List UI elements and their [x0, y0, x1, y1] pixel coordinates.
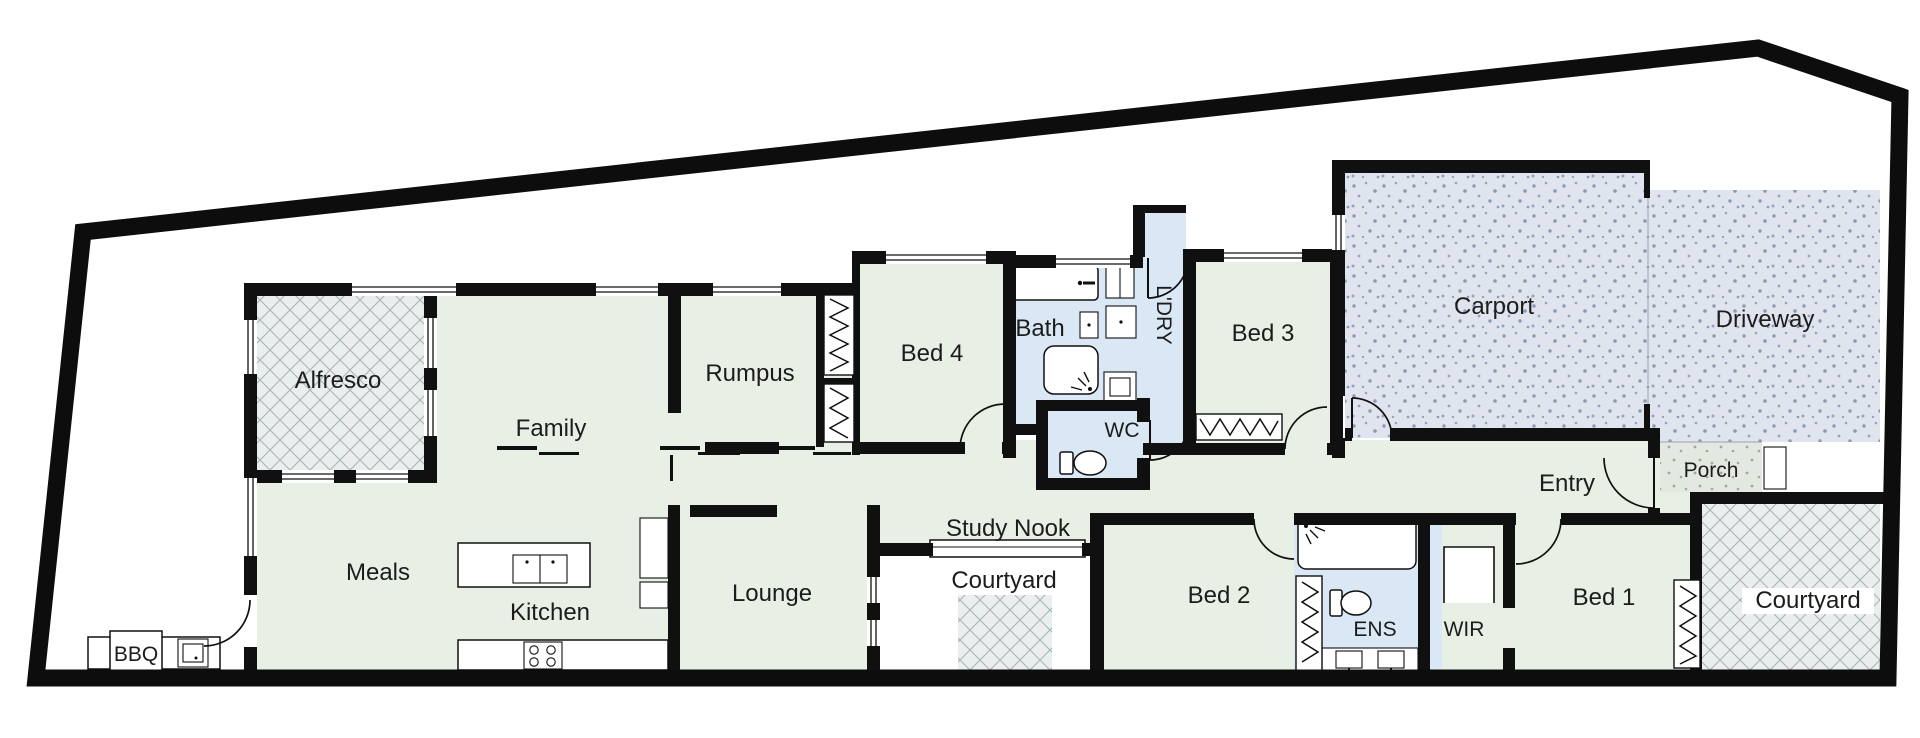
- room-label-porch: Porch: [1684, 459, 1739, 482]
- shower-head-icon: [1088, 387, 1092, 391]
- room-label-entry: Entry: [1539, 470, 1595, 497]
- laundry-trough-bowl: [1110, 378, 1130, 396]
- room-label-meals: Meals: [346, 559, 410, 586]
- kitchen-bench: [458, 640, 668, 670]
- wall-alfresco-bottom: [244, 470, 437, 483]
- floor-plan-canvas: Alfresco Family Rumpus Bed 4 Bath L'DRY …: [0, 0, 1920, 738]
- room-label-kitchen: Kitchen: [510, 599, 590, 626]
- bbq-sink-drain: [195, 657, 198, 660]
- burner-4: [547, 658, 555, 666]
- ens-toilet: [1341, 591, 1371, 615]
- window-bath-top: [1056, 255, 1130, 268]
- wall-driveway-stub-top: [1644, 160, 1650, 198]
- ens-cistern: [1330, 590, 1342, 616]
- room-label-carport: Carport: [1454, 293, 1534, 320]
- wall-ens-wir: [1418, 513, 1430, 678]
- room-label-courtyard-center: Courtyard: [951, 567, 1056, 594]
- room-label-bath: Bath: [1015, 315, 1064, 342]
- bed1-robe: [1674, 580, 1700, 668]
- window-alfresco-bottom-2: [356, 470, 408, 483]
- burner-1: [530, 646, 538, 654]
- wall-courtyard-left: [867, 543, 880, 678]
- room-label-wc: WC: [1105, 419, 1140, 442]
- slider-hall-1a: [660, 446, 700, 450]
- burner-2: [547, 646, 555, 654]
- bath-shower: [1044, 346, 1098, 394]
- wall-courtyard-right-top: [1690, 492, 1886, 504]
- window-alfresco-right-1: [424, 318, 437, 368]
- wall-lounge-top: [690, 505, 777, 517]
- slider-family-vertical: [670, 455, 673, 481]
- wall-bed3-bottom-left: [1185, 443, 1285, 455]
- courtyard-center-paving: [958, 595, 1052, 672]
- wall-driveway-stub-bottom: [1644, 404, 1650, 441]
- room-label-lounge: Lounge: [732, 580, 812, 607]
- study-nook-desk: [930, 540, 1085, 557]
- window-alfresco-top: [352, 283, 456, 296]
- bed3-robe: [1196, 414, 1282, 440]
- window-courtyard-left-2: [867, 620, 880, 646]
- porch-step: [1764, 447, 1786, 489]
- slider-family-2: [539, 452, 579, 455]
- burner-3: [530, 658, 538, 666]
- wall-carport-top: [1338, 160, 1648, 173]
- wall-carport-left-mid: [1332, 250, 1345, 396]
- room-label-bed2: Bed 2: [1188, 582, 1251, 609]
- fridge-space: [640, 518, 668, 578]
- room-label-bed1: Bed 1: [1573, 584, 1636, 611]
- wall-rumpus-linen: [816, 289, 824, 447]
- wall-wir-bed1-upper: [1503, 513, 1515, 608]
- room-label-study-nook: Study Nook: [946, 515, 1071, 542]
- wall-laundry-alcove-side: [1133, 212, 1145, 257]
- room-label-courtyard-right: Courtyard: [1755, 587, 1860, 614]
- slider-hall-1b: [698, 452, 740, 455]
- window-alfresco-right-2: [424, 390, 437, 436]
- kitchen-sink-tap-1: [525, 560, 528, 563]
- wall-wc-right-lower: [1137, 458, 1150, 480]
- ens-basin-2: [1378, 651, 1404, 668]
- window-alfresco-bottom-1: [282, 470, 334, 483]
- wall-courtyard-bed2: [1090, 513, 1104, 678]
- wall-family-rumpus: [668, 283, 681, 413]
- wall-wc-left: [1036, 400, 1048, 480]
- wall-carport-left-upper: [1332, 160, 1345, 215]
- kitchen-sink-tap-2: [551, 560, 554, 563]
- slider-hall-2b: [813, 452, 851, 455]
- wall-bed4-bottom-stub: [1002, 442, 1016, 454]
- wall-bed1-top: [1561, 513, 1690, 525]
- floor-plan: Alfresco Family Rumpus Bed 4 Bath L'DRY …: [0, 0, 1920, 738]
- slider-hall-2a: [779, 446, 815, 450]
- wall-entry-lower: [1648, 508, 1660, 518]
- wall-linen-divider: [822, 378, 858, 384]
- window-courtyard-left-1: [867, 577, 880, 603]
- room-label-bed3: Bed 3: [1232, 320, 1295, 347]
- wir-shelf: [1444, 547, 1494, 603]
- wall-kitchen-lounge: [668, 505, 680, 678]
- window-bed3-top: [1224, 249, 1302, 262]
- wall-laundry-alcove-top: [1133, 205, 1186, 213]
- label-bbq: BBQ: [114, 643, 158, 666]
- slider-family-1: [497, 446, 537, 450]
- wall-studynook-left: [867, 505, 880, 545]
- window-bed4-top: [886, 251, 986, 264]
- wall-carport-bottom-stub: [1345, 428, 1352, 441]
- cooktop: [524, 642, 562, 669]
- wall-bed3-bottom-stub: [1327, 443, 1343, 455]
- window-alfresco-left-1: [244, 320, 257, 374]
- room-label-driveway: Driveway: [1716, 306, 1815, 333]
- bath-vanity-tap: [1087, 323, 1090, 326]
- wall-ens-top: [1294, 513, 1516, 525]
- window-meals-left: [244, 478, 257, 556]
- bbq-sink-bowl: [183, 644, 203, 662]
- window-family-top: [596, 283, 658, 296]
- pantry-cabinet: [640, 582, 668, 608]
- room-label-bed4: Bed 4: [901, 340, 964, 367]
- room-label-family: Family: [516, 415, 587, 442]
- wall-carport-bottom: [1390, 428, 1648, 441]
- wall-wc-top: [1040, 400, 1150, 411]
- wall-bed4-bottom: [855, 442, 965, 454]
- wc-cistern: [1060, 452, 1073, 474]
- ens-basin-1: [1336, 651, 1362, 668]
- wall-wc-bottom: [1036, 478, 1150, 490]
- wall-bed2-top: [1104, 513, 1254, 525]
- wc-toilet: [1074, 451, 1106, 475]
- room-label-wir: WIR: [1444, 618, 1485, 641]
- room-label-alfresco: Alfresco: [295, 367, 382, 394]
- wall-courtyard-top-left: [867, 543, 933, 556]
- bathtub-tap: [1078, 281, 1082, 285]
- laundry-sink-tap: [1119, 320, 1122, 323]
- window-carport-left: [1332, 215, 1345, 250]
- room-label-rumpus: Rumpus: [705, 360, 794, 387]
- room-label-laundry: L'DRY: [1152, 285, 1175, 345]
- window-rumpus-top: [713, 283, 781, 296]
- room-label-ens: ENS: [1353, 618, 1396, 641]
